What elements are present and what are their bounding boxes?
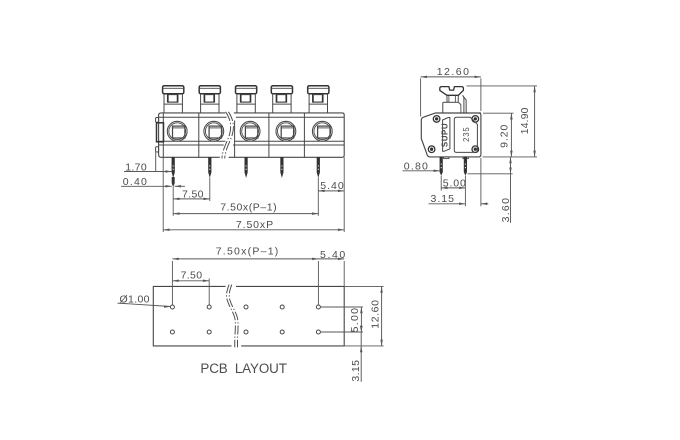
svg-text:14.90: 14.90 (520, 107, 531, 134)
svg-text:7.50x(P–1): 7.50x(P–1) (216, 246, 280, 258)
svg-text:3.15: 3.15 (431, 193, 455, 205)
svg-text:7.50x(P–1): 7.50x(P–1) (220, 201, 277, 213)
svg-text:12.60: 12.60 (437, 66, 471, 78)
svg-text:PCBLAYOUT: PCBLAYOUT (200, 361, 286, 376)
svg-text:235: 235 (462, 126, 471, 141)
svg-text:9.20: 9.20 (498, 124, 510, 148)
svg-text:3.15: 3.15 (350, 360, 362, 382)
svg-text:5.00: 5.00 (349, 307, 361, 333)
svg-text:12.60: 12.60 (369, 299, 381, 328)
svg-text:SUPU: SUPU (441, 123, 450, 147)
svg-text:3.60: 3.60 (500, 197, 512, 223)
svg-text:7.50xP: 7.50xP (236, 219, 274, 231)
svg-text:7.50: 7.50 (181, 269, 203, 281)
